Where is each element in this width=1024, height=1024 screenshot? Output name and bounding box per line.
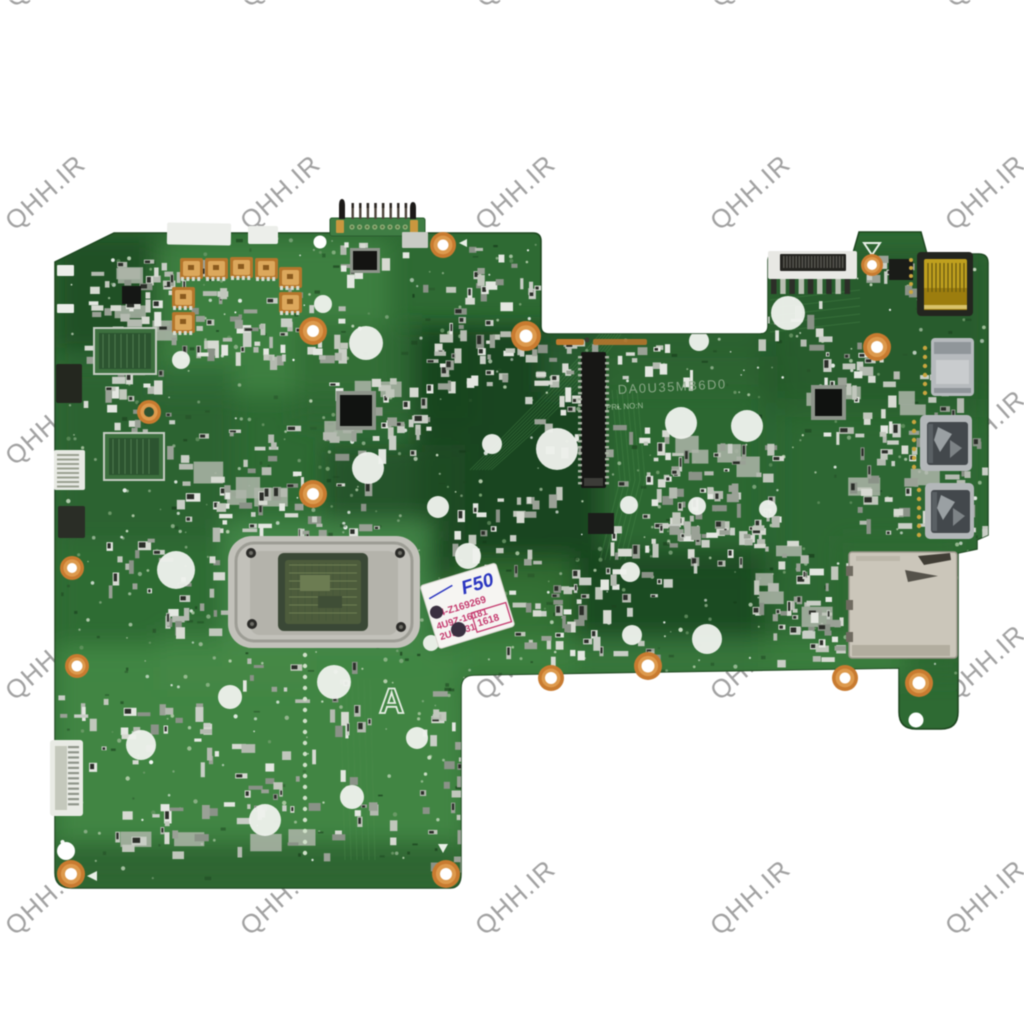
svg-text:A: A <box>379 682 404 721</box>
